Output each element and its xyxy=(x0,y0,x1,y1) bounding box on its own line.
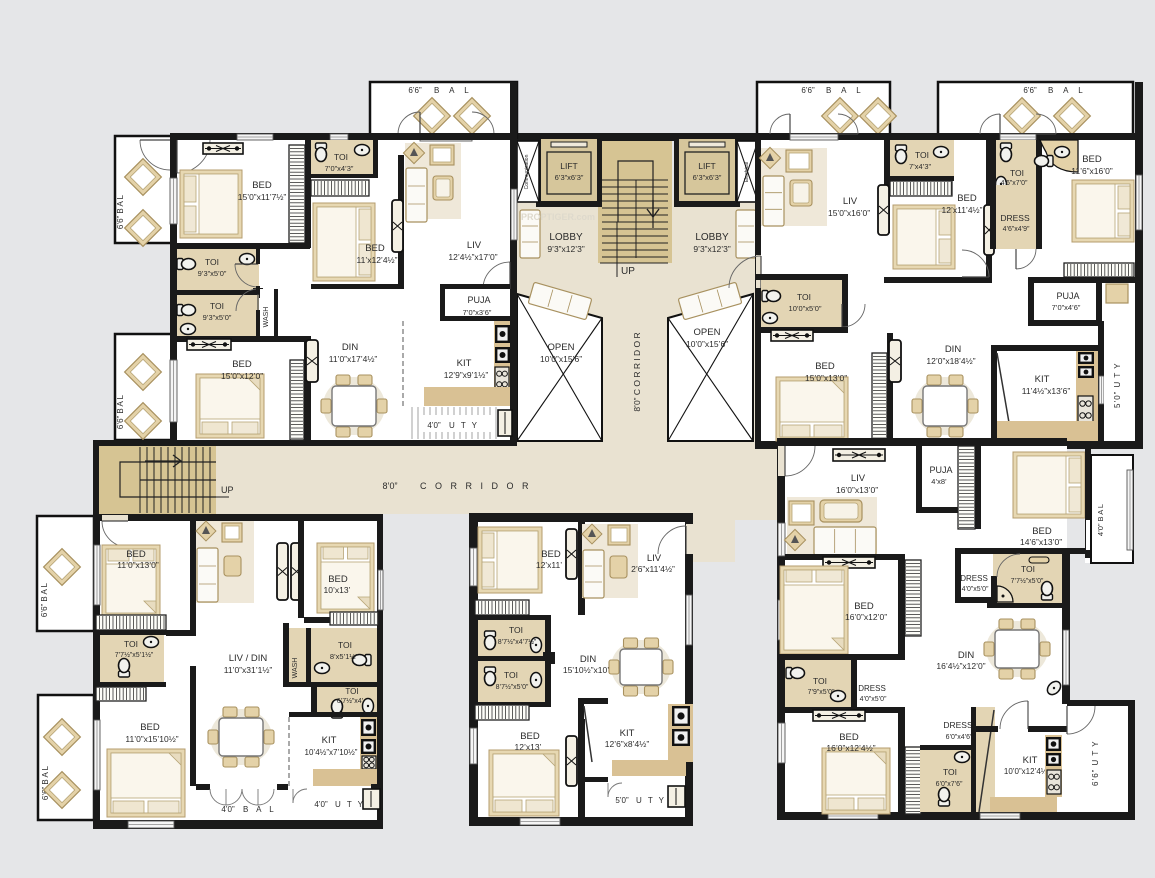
svg-text:12’0”x18’4½”: 12’0”x18’4½” xyxy=(926,356,975,366)
svg-text:6’6”: 6’6” xyxy=(801,86,815,95)
svg-text:BED: BED xyxy=(365,243,385,254)
svg-text:DRESS: DRESS xyxy=(1000,213,1030,223)
svg-text:6’0”x4’6”: 6’0”x4’6” xyxy=(946,734,974,741)
svg-text:4’0”: 4’0” xyxy=(221,805,235,814)
svg-text:LOBBY: LOBBY xyxy=(549,232,583,243)
svg-text:BED: BED xyxy=(1082,154,1102,165)
svg-text:TOI: TOI xyxy=(205,257,219,267)
svg-text:15’0”x12’0”: 15’0”x12’0” xyxy=(221,371,263,381)
svg-text:11’4½”x13’6”: 11’4½”x13’6” xyxy=(1022,386,1071,396)
svg-text:4’0” B A L: 4’0” B A L xyxy=(1096,504,1105,536)
svg-text:4’0”: 4’0” xyxy=(427,421,441,430)
svg-text:TOI: TOI xyxy=(334,152,348,162)
svg-text:BED: BED xyxy=(815,361,835,372)
svg-text:6’0”x7’6”: 6’0”x7’6” xyxy=(936,781,964,788)
svg-text:16’4½”x12’0”: 16’4½”x12’0” xyxy=(936,661,985,671)
svg-text:OPEN: OPEN xyxy=(694,327,721,338)
svg-text:BED: BED xyxy=(839,732,859,743)
svg-text:4’0”: 4’0” xyxy=(314,800,328,809)
svg-text:TOI: TOI xyxy=(210,301,224,311)
svg-text:8’7½”x4’7½”: 8’7½”x4’7½” xyxy=(498,638,537,646)
svg-text:7’x4’3”: 7’x4’3” xyxy=(909,162,932,171)
svg-text:B A L: B A L xyxy=(243,805,277,814)
svg-text:KIT: KIT xyxy=(1023,755,1038,766)
svg-text:12’4½”x17’0”: 12’4½”x17’0” xyxy=(448,252,497,262)
svg-text:16’0”x13’0”: 16’0”x13’0” xyxy=(836,485,878,495)
svg-text:TOI: TOI xyxy=(915,150,929,160)
svg-text:11’0”x13’0”: 11’0”x13’0” xyxy=(117,560,159,570)
svg-text:8’0” C O R R I D O R: 8’0” C O R R I D O R xyxy=(632,332,642,411)
svg-text:BED: BED xyxy=(252,180,272,191)
svg-text:4’0”x5’0”: 4’0”x5’0” xyxy=(962,586,990,593)
svg-text:11’0”x15’10½”: 11’0”x15’10½” xyxy=(125,734,178,744)
svg-text:B A L: B A L xyxy=(434,86,473,95)
svg-text:Communication: Communication xyxy=(524,154,530,189)
svg-text:TOI: TOI xyxy=(504,670,518,680)
svg-text:LIV: LIV xyxy=(647,553,662,564)
svg-text:OPEN: OPEN xyxy=(548,342,575,353)
svg-text:6’3”x6’3”: 6’3”x6’3” xyxy=(693,173,722,182)
svg-text:7’0”x4’6”: 7’0”x4’6” xyxy=(1052,303,1081,312)
svg-text:6’6” B A L: 6’6” B A L xyxy=(116,194,125,229)
svg-text:7’0”x3’6”: 7’0”x3’6” xyxy=(463,308,492,317)
svg-text:DIN: DIN xyxy=(342,342,359,353)
svg-text:TOI: TOI xyxy=(797,292,811,302)
svg-text:WASH: WASH xyxy=(263,307,270,328)
svg-text:7’9”x5’0”: 7’9”x5’0” xyxy=(808,689,836,696)
svg-text:TOI: TOI xyxy=(345,687,358,696)
svg-text:U T Y: U T Y xyxy=(449,421,479,430)
svg-text:DRESS: DRESS xyxy=(943,720,973,730)
svg-text:LIFT: LIFT xyxy=(560,161,577,171)
svg-text:15’10½”x10’: 15’10½”x10’ xyxy=(563,665,609,675)
svg-text:15’0”x13’0”: 15’0”x13’0” xyxy=(805,373,847,383)
svg-text:TOI: TOI xyxy=(1021,564,1035,574)
svg-text:TOI: TOI xyxy=(124,639,138,649)
svg-text:4’x8’: 4’x8’ xyxy=(931,477,947,486)
svg-text:BED: BED xyxy=(1032,526,1052,537)
svg-text:BED: BED xyxy=(520,731,540,742)
svg-text:DRESS: DRESS xyxy=(858,684,886,693)
svg-text:PUJA: PUJA xyxy=(467,295,490,305)
svg-text:12’x13’: 12’x13’ xyxy=(515,742,542,752)
svg-text:15’0”x11’7½”: 15’0”x11’7½” xyxy=(238,192,287,202)
svg-text:WASH: WASH xyxy=(292,658,299,679)
svg-text:PUJA: PUJA xyxy=(1056,291,1079,301)
svg-text:KIT: KIT xyxy=(457,358,472,369)
svg-text:2’6”x11’4½”: 2’6”x11’4½” xyxy=(631,564,675,574)
svg-text:TOI: TOI xyxy=(813,676,827,686)
svg-text:9’3”x12’3”: 9’3”x12’3” xyxy=(693,244,730,254)
svg-text:BED: BED xyxy=(140,722,160,733)
svg-text:LIV: LIV xyxy=(851,473,866,484)
svg-text:LIV / DIN: LIV / DIN xyxy=(229,653,268,664)
svg-text:11’0”x17’4½”: 11’0”x17’4½” xyxy=(329,354,378,364)
svg-text:6’6” U T Y: 6’6” U T Y xyxy=(1091,740,1100,786)
svg-text:DIN: DIN xyxy=(580,654,597,665)
svg-text:11’0”x31’1½”: 11’0”x31’1½” xyxy=(224,665,273,675)
svg-text:LOBBY: LOBBY xyxy=(695,232,729,243)
svg-text:7’0”x4’3”: 7’0”x4’3” xyxy=(325,164,354,173)
svg-text:6’6”: 6’6” xyxy=(408,86,422,95)
svg-text:9’3”x12’3”: 9’3”x12’3” xyxy=(547,244,584,254)
svg-text:7’7½”x5’1½”: 7’7½”x5’1½” xyxy=(115,651,154,659)
svg-text:10’4½”x7’10½”: 10’4½”x7’10½” xyxy=(305,748,358,757)
svg-text:LIFT: LIFT xyxy=(698,161,715,171)
svg-text:DRESS: DRESS xyxy=(960,574,988,583)
svg-text:4’0”x5’0”: 4’0”x5’0” xyxy=(860,696,888,703)
svg-text:9’3”x5’0”: 9’3”x5’0” xyxy=(203,313,232,322)
svg-text:8’x5’1½”: 8’x5’1½” xyxy=(330,652,359,661)
svg-text:BED: BED xyxy=(328,574,348,585)
svg-text:U T Y: U T Y xyxy=(335,800,365,809)
svg-text:LIV: LIV xyxy=(843,196,858,207)
svg-text:KIT: KIT xyxy=(322,735,337,746)
svg-text:4’6”x4’9”: 4’6”x4’9” xyxy=(1003,226,1031,233)
svg-text:KIT: KIT xyxy=(620,728,635,739)
svg-text:DIN: DIN xyxy=(958,650,975,661)
svg-text:TOI: TOI xyxy=(509,625,523,635)
svg-text:UP: UP xyxy=(621,266,635,277)
svg-text:6’6” B A L: 6’6” B A L xyxy=(116,394,125,429)
svg-text:5’0”: 5’0” xyxy=(615,796,629,805)
svg-text:TOI: TOI xyxy=(1010,168,1024,178)
svg-text:TOI: TOI xyxy=(338,640,352,650)
svg-text:10’0”x15’6”: 10’0”x15’6” xyxy=(540,354,582,364)
svg-text:PUJA: PUJA xyxy=(929,465,952,475)
svg-text:UP: UP xyxy=(221,485,234,495)
svg-text:10’x13’: 10’x13’ xyxy=(324,585,351,595)
svg-text:6’6”: 6’6” xyxy=(1023,86,1037,95)
svg-text:B A L: B A L xyxy=(1048,86,1087,95)
svg-text:15’0”x16’0”: 15’0”x16’0” xyxy=(828,208,870,218)
svg-text:6’7½”x4’: 6’7½”x4’ xyxy=(337,697,364,705)
svg-text:TOI: TOI xyxy=(943,767,957,777)
svg-text:LIV: LIV xyxy=(467,240,482,251)
svg-text:BED: BED xyxy=(957,193,977,204)
svg-text:9’3”x5’0”: 9’3”x5’0” xyxy=(198,269,227,278)
svg-text:10’0”x12’4½”: 10’0”x12’4½” xyxy=(1004,767,1051,776)
svg-text:B A L: B A L xyxy=(826,86,865,95)
svg-text:16’0”x12’4½”: 16’0”x12’4½” xyxy=(826,743,875,753)
svg-text:10’0”x5’0”: 10’0”x5’0” xyxy=(789,304,822,313)
svg-text:12’x11’: 12’x11’ xyxy=(536,560,562,570)
svg-text:8’7½”x5’0”: 8’7½”x5’0” xyxy=(496,683,529,691)
svg-text:DIN: DIN xyxy=(945,344,962,355)
svg-text:C O R R I D O R: C O R R I D O R xyxy=(420,481,532,491)
svg-text:11’6”x16’0”: 11’6”x16’0” xyxy=(1071,166,1113,176)
svg-text:PROPTIGER.com: PROPTIGER.com xyxy=(521,212,595,222)
svg-text:BED: BED xyxy=(541,549,561,560)
svg-text:BED: BED xyxy=(126,549,146,560)
svg-text:KIT: KIT xyxy=(1035,374,1050,385)
svg-text:8’0”: 8’0” xyxy=(382,481,397,491)
svg-text:U T Y: U T Y xyxy=(636,796,666,805)
svg-text:BED: BED xyxy=(232,359,252,370)
svg-text:5’0” U T Y: 5’0” U T Y xyxy=(1113,362,1122,408)
svg-text:12’9”x9’1½”: 12’9”x9’1½” xyxy=(444,370,489,380)
svg-text:10’0”x15’6”: 10’0”x15’6” xyxy=(686,339,728,349)
svg-text:12’x11’4½”: 12’x11’4½” xyxy=(942,205,983,215)
svg-text:6’3”x6’3”: 6’3”x6’3” xyxy=(555,173,584,182)
svg-text:16’0”x12’0”: 16’0”x12’0” xyxy=(845,612,887,622)
svg-text:12’6”x8’4½”: 12’6”x8’4½” xyxy=(605,739,650,749)
svg-text:BED: BED xyxy=(854,601,874,612)
svg-text:7’7½”x5’0”: 7’7½”x5’0” xyxy=(1011,577,1044,585)
svg-text:14’6”x13’0”: 14’6”x13’0” xyxy=(1020,537,1062,547)
svg-text:11’x12’4½”: 11’x12’4½” xyxy=(357,255,398,265)
svg-text:Electrical: Electrical xyxy=(744,162,750,182)
svg-text:6’6” B A L: 6’6” B A L xyxy=(40,582,49,617)
